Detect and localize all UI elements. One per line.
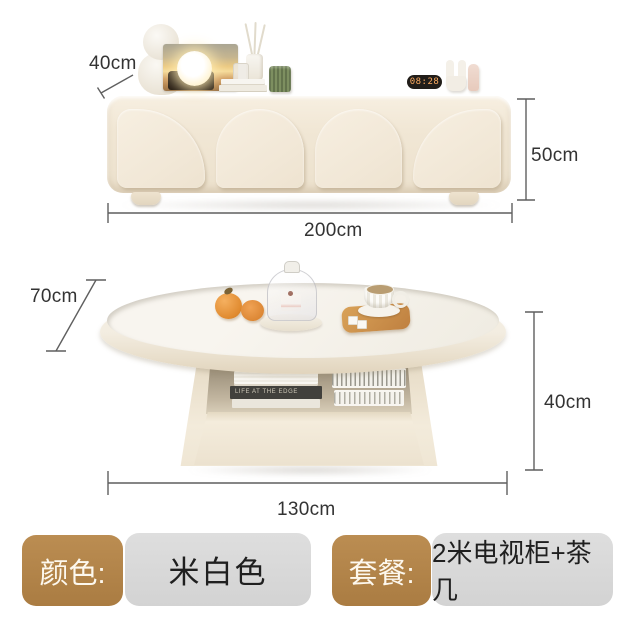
coffee-cup-liquid [366,284,394,295]
cabinet-foot-right [449,192,479,205]
glass-cloche-dome [267,269,317,321]
persimmon-fruit-1 [215,293,242,319]
white-book-thin [232,399,320,408]
table-depth-label: 70cm [30,286,78,308]
digital-clock: 08:28 [407,75,442,89]
sugar-cube-2 [357,320,367,329]
shelf-books-right [332,368,406,410]
color-option-value[interactable]: 米白色 [125,533,311,606]
cabinet-drawer-panels [117,109,501,188]
color-option-label: 颜色: [22,535,123,606]
cabinet-depth-label: 40cm [89,53,137,75]
cabinet-height-label: 50cm [531,145,579,167]
table-base-front [194,412,424,465]
drawer-panel-1 [117,109,205,188]
package-option-value[interactable]: 2米电视柜+茶几 [432,533,613,606]
moon-lamp-orb [177,51,212,86]
green-ribbed-vase [269,66,291,92]
u-vase-base [446,76,466,91]
tv-cabinet [107,96,511,193]
diffuser-sticks [246,22,266,58]
shelf-books-left: LIFE AT THE EDGE [230,371,322,411]
product-spec-image: 40cm 50cm 200cm 70cm 40cm 130cm 08:28 [0,0,640,640]
cabinet-floor-shadow [115,199,507,211]
coffee-cup-handle [392,291,409,308]
cabinet-books-stack [219,79,267,92]
table-height-label: 40cm [544,392,592,414]
package-option-label: 套餐: [332,535,431,606]
drawer-panel-2 [216,109,304,188]
cabinet-width-label: 200cm [304,220,363,242]
table-width-label: 130cm [277,499,336,521]
pink-tube-vase [468,64,479,91]
persimmon-fruit-2 [241,300,264,321]
book-spine: LIFE AT THE EDGE [230,386,322,399]
table-height-line [525,312,543,470]
cloche-knob [284,261,300,273]
drawer-panel-3 [315,109,403,188]
cabinet-depth-pointer [98,75,134,99]
drawer-panel-4 [413,109,501,188]
cabinet-foot-left [131,192,161,205]
